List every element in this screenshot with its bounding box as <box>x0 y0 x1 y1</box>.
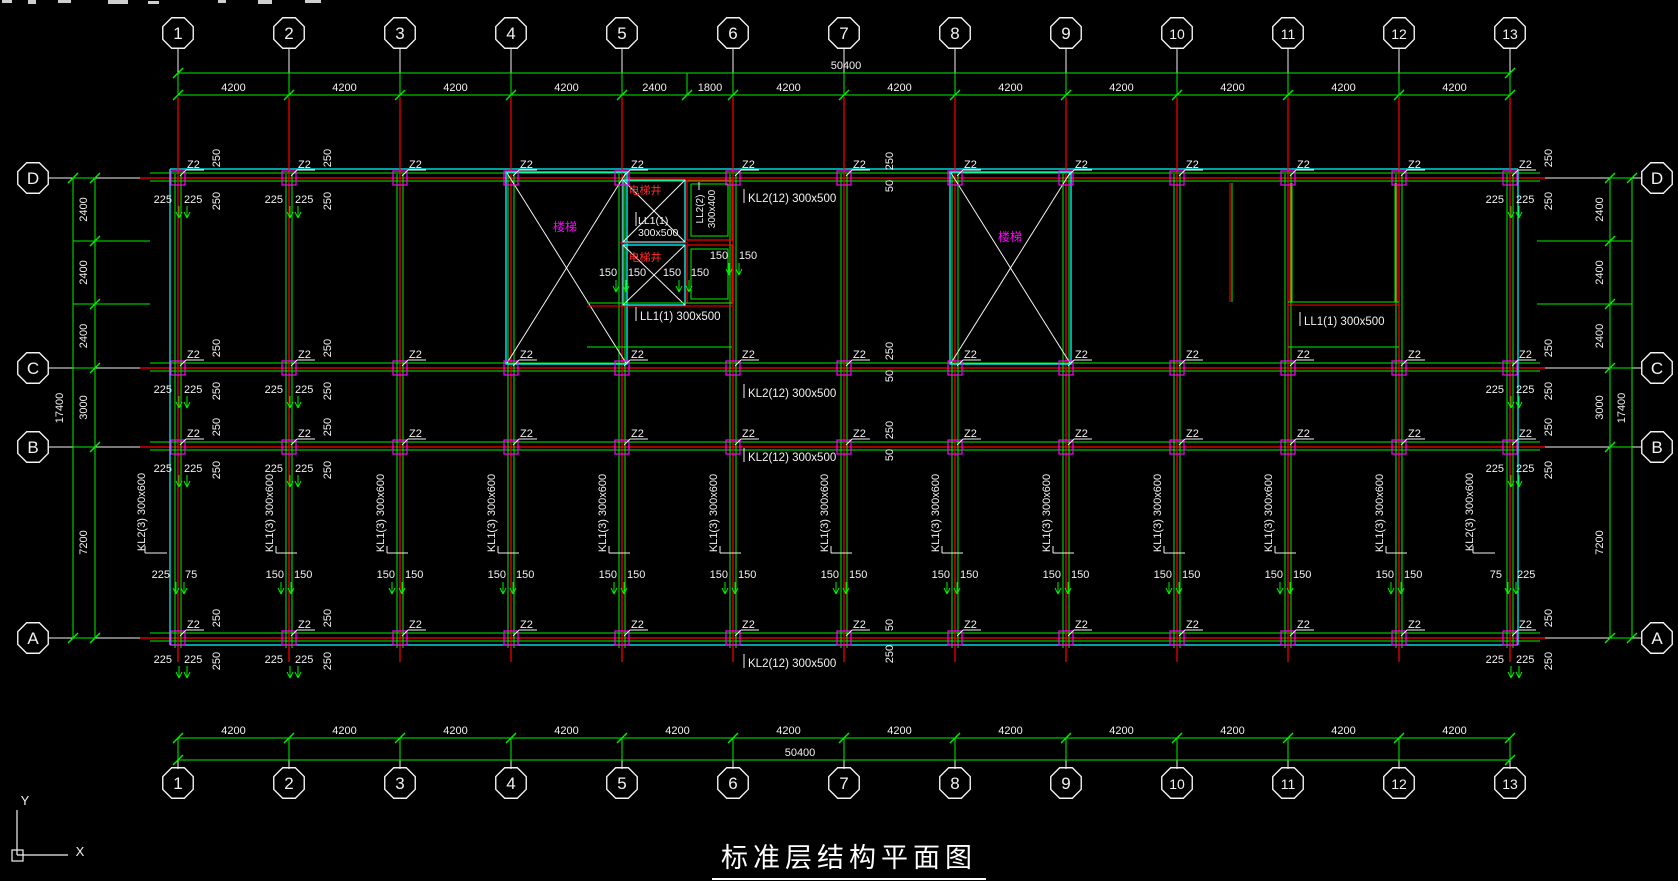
bubble-label: 2 <box>284 24 293 43</box>
column-tag: Z2 <box>1408 349 1421 361</box>
dim-text: 4200 <box>554 725 578 737</box>
column-tag: Z2 <box>1297 349 1310 361</box>
column-tag: Z2 <box>1075 159 1088 171</box>
dim-text: 225 <box>184 463 202 475</box>
dim-text: 225 <box>1486 654 1504 666</box>
dim-text: 150 <box>738 569 756 581</box>
dim-text: 150 <box>599 569 617 581</box>
dim-text: 2400 <box>78 197 90 221</box>
dim-text: 225 <box>295 194 313 206</box>
column-tag: Z2 <box>1186 428 1199 440</box>
dim-text: 150 <box>628 267 646 279</box>
beam-label: KL1(3) 300x600 <box>1152 474 1164 552</box>
column-tag: Z2 <box>187 159 200 171</box>
dim-text: 225 <box>265 194 283 206</box>
dim-text: 7200 <box>78 530 90 554</box>
beam-label: KL1(3) 300x600 <box>264 474 276 552</box>
stair-label: 楼梯 <box>998 229 1022 244</box>
dim-text: 250 <box>211 461 223 479</box>
dim-text: 150 <box>1043 569 1061 581</box>
clipped-text-fragment <box>108 0 128 4</box>
dim-text: 150 <box>516 569 534 581</box>
beam-label: KL2(12) 300x500 <box>748 388 836 400</box>
dim-text: 2400 <box>78 260 90 284</box>
dim-text: 50 <box>884 370 896 382</box>
dim-text: 2400 <box>642 82 666 94</box>
dim-text: 4200 <box>332 725 356 737</box>
dim-text: 250 <box>322 382 334 400</box>
dim-text: 225 <box>1486 194 1504 206</box>
bubble-label: 12 <box>1391 776 1407 792</box>
bubble-label: 8 <box>950 24 959 43</box>
column-tag: Z2 <box>742 349 755 361</box>
column-tag: Z2 <box>1408 159 1421 171</box>
dim-text: 4200 <box>332 82 356 94</box>
column-tag: Z2 <box>520 619 533 631</box>
beam-label: LL1(1) 300x500 <box>640 311 721 323</box>
dim-text: 250 <box>211 149 223 167</box>
column-tag: Z2 <box>1297 428 1310 440</box>
dim-text: 150 <box>627 569 645 581</box>
column-tag: Z2 <box>631 619 644 631</box>
dim-text: 225 <box>265 384 283 396</box>
dim-text: 225 <box>295 654 313 666</box>
bubble-label: 11 <box>1281 776 1296 792</box>
dim-text: 225 <box>154 463 172 475</box>
dim-text: 250 <box>1543 461 1555 479</box>
dim-text: 3000 <box>1594 395 1606 419</box>
bubble-label: C <box>27 359 39 378</box>
dim-text: 150 <box>1154 569 1172 581</box>
bubble-label: B <box>1651 438 1662 457</box>
dim-text: 4200 <box>554 82 578 94</box>
dim-text: 2400 <box>1594 260 1606 284</box>
clipped-text-fragment <box>2 0 12 3</box>
beam-label: KL2(3) 300x600 <box>1464 473 1476 551</box>
beam-label: KL1(3) 300x600 <box>375 474 387 552</box>
dim-text: 2400 <box>1594 197 1606 221</box>
column-tag: Z2 <box>520 159 533 171</box>
dim-text: 225 <box>184 384 202 396</box>
column-tag: Z2 <box>853 159 866 171</box>
clipped-text-fragment <box>305 0 321 3</box>
clipped-text-fragment <box>258 0 272 4</box>
dim-text: 4200 <box>887 82 911 94</box>
bubble-label: 7 <box>839 774 848 793</box>
dim-text: 225 <box>295 463 313 475</box>
column-tag: Z2 <box>742 159 755 171</box>
dim-text: 150 <box>663 267 681 279</box>
dim-text: 250 <box>211 192 223 210</box>
dim-text: 225 <box>1516 463 1534 475</box>
dim-text: 250 <box>1543 339 1555 357</box>
bubble-label: 4 <box>506 24 515 43</box>
beam-label: LL1(1) 300x500 <box>1304 316 1385 328</box>
clipped-text-fragment <box>148 1 159 4</box>
column-tag: Z2 <box>631 159 644 171</box>
dim-text: 250 <box>1543 652 1555 670</box>
dim-text: 225 <box>154 194 172 206</box>
dim-text: 225 <box>154 654 172 666</box>
dim-text: 150 <box>266 569 284 581</box>
bubble-label: 6 <box>728 774 737 793</box>
dim-text: 150 <box>960 569 978 581</box>
dim-text: 225 <box>265 463 283 475</box>
total-dim: 17400 <box>54 393 66 424</box>
beam-label: 300x500 <box>638 227 678 239</box>
dim-text: 150 <box>1071 569 1089 581</box>
column-tag: Z2 <box>1075 619 1088 631</box>
bubble-label: 5 <box>617 24 626 43</box>
column-tag: Z2 <box>1519 159 1532 171</box>
bubble-label: D <box>27 169 39 188</box>
ucs-y-label: Y <box>21 793 30 808</box>
dim-text: 4200 <box>887 725 911 737</box>
dim-text: 4200 <box>443 725 467 737</box>
bubble-label: 3 <box>395 24 404 43</box>
bubble-label: 5 <box>617 774 626 793</box>
dim-text: 150 <box>710 250 728 262</box>
dim-text: 225 <box>1486 463 1504 475</box>
total-dim: 17400 <box>1616 393 1628 424</box>
column-tag: Z2 <box>298 159 311 171</box>
dim-text: 3000 <box>78 395 90 419</box>
column-tag: Z2 <box>631 428 644 440</box>
dim-text: 150 <box>1404 569 1422 581</box>
beam-label: KL1(3) 300x600 <box>930 474 942 552</box>
bubble-label: 13 <box>1502 26 1518 42</box>
column-tag: Z2 <box>298 619 311 631</box>
beam-label: KL1(3) 300x600 <box>486 474 498 552</box>
dim-text: 4200 <box>1220 82 1244 94</box>
dim-text: 225 <box>184 654 202 666</box>
beam-label: KL1(3) 300x600 <box>1041 474 1053 552</box>
dim-text: 225 <box>295 384 313 396</box>
dim-text: 4200 <box>1331 82 1355 94</box>
dim-text: 250 <box>1543 418 1555 436</box>
column-tag: Z2 <box>853 428 866 440</box>
beam-label: LL2(2) <box>695 195 706 224</box>
dim-text: 250 <box>211 609 223 627</box>
column-tag: Z2 <box>409 159 422 171</box>
dim-text: 250 <box>211 339 223 357</box>
column-tag: Z2 <box>1075 428 1088 440</box>
dim-text: 150 <box>405 569 423 581</box>
dim-text: 250 <box>322 461 334 479</box>
column-tag: Z2 <box>1519 619 1532 631</box>
beam-label: KL2(12) 300x500 <box>748 658 836 670</box>
clipped-text-fragment <box>218 0 226 3</box>
dim-text: 50 <box>884 449 896 461</box>
column-tag: Z2 <box>631 349 644 361</box>
bubble-label: 10 <box>1169 26 1185 42</box>
beam-label: KL1(3) 300x600 <box>708 474 720 552</box>
elevator-shaft-label: 电梯井 <box>629 250 662 264</box>
bubble-label: 10 <box>1169 776 1185 792</box>
dim-text: 4200 <box>776 725 800 737</box>
dim-text: 4200 <box>1331 725 1355 737</box>
dim-text: 150 <box>488 569 506 581</box>
bubble-label: 1 <box>173 774 182 793</box>
dim-text: 250 <box>884 421 896 439</box>
beam-label: LL1(1) <box>638 215 668 227</box>
column-tag: Z2 <box>1408 428 1421 440</box>
bubble-label: 1 <box>173 24 182 43</box>
dim-text: 4200 <box>665 725 689 737</box>
column-tag: Z2 <box>964 349 977 361</box>
dim-text: 225 <box>1517 569 1535 581</box>
bubble-label: 4 <box>506 774 515 793</box>
dim-text: 2400 <box>1594 324 1606 348</box>
total-dim: 50400 <box>831 60 862 72</box>
dim-text: 250 <box>884 342 896 360</box>
dim-text: 225 <box>1516 194 1534 206</box>
dim-text: 4200 <box>1442 725 1466 737</box>
beam-label: KL2(12) 300x500 <box>748 452 836 464</box>
dim-text: 4200 <box>1220 725 1244 737</box>
column-tag: Z2 <box>1519 428 1532 440</box>
dim-text: 225 <box>1516 654 1534 666</box>
bubble-label: B <box>27 438 38 457</box>
column-tag: Z2 <box>742 619 755 631</box>
structural-plan-drawing: 4200420042004200240018004200420042004200… <box>0 0 1678 881</box>
dim-text: 50 <box>884 180 896 192</box>
dim-text: 250 <box>322 418 334 436</box>
dim-text: 4200 <box>1109 725 1133 737</box>
bubble-label: 11 <box>1281 26 1296 42</box>
dim-text: 75 <box>1490 569 1502 581</box>
dim-text: 250 <box>884 645 896 663</box>
dim-text: 4200 <box>221 725 245 737</box>
total-dim: 50400 <box>785 747 816 759</box>
column-tag: Z2 <box>1186 349 1199 361</box>
dim-text: 2400 <box>78 324 90 348</box>
dim-text: 4200 <box>998 725 1022 737</box>
bubble-label: 9 <box>1061 24 1070 43</box>
ucs-x-label: X <box>76 844 85 859</box>
dim-text: 250 <box>322 149 334 167</box>
dim-text: 150 <box>821 569 839 581</box>
bubble-label: 6 <box>728 24 737 43</box>
dim-text: 250 <box>322 192 334 210</box>
dim-text: 4200 <box>443 82 467 94</box>
dim-text: 150 <box>1182 569 1200 581</box>
column-tag: Z2 <box>1519 349 1532 361</box>
dim-text: 50 <box>884 619 896 631</box>
dim-text: 250 <box>1543 609 1555 627</box>
dim-text: 250 <box>1543 192 1555 210</box>
dim-text: 250 <box>1543 382 1555 400</box>
dim-text: 250 <box>211 652 223 670</box>
bubble-label: C <box>1651 359 1663 378</box>
column-tag: Z2 <box>742 428 755 440</box>
column-tag: Z2 <box>1186 619 1199 631</box>
bubble-label: 8 <box>950 774 959 793</box>
column-tag: Z2 <box>964 428 977 440</box>
bubble-label: D <box>1651 169 1663 188</box>
column-tag: Z2 <box>187 349 200 361</box>
column-tag: Z2 <box>853 349 866 361</box>
dim-text: 250 <box>322 339 334 357</box>
column-tag: Z2 <box>409 428 422 440</box>
dim-text: 7200 <box>1594 530 1606 554</box>
column-tag: Z2 <box>1075 349 1088 361</box>
column-tag: Z2 <box>298 428 311 440</box>
dim-text: 4200 <box>1109 82 1133 94</box>
drawing-title: 标准层结构平面图 <box>712 836 986 881</box>
bubble-label: 12 <box>1391 26 1407 42</box>
dim-text: 225 <box>184 194 202 206</box>
bubble-label: 9 <box>1061 774 1070 793</box>
dim-text: 150 <box>739 250 757 262</box>
dim-text: 250 <box>322 609 334 627</box>
dim-text: 225 <box>154 384 172 396</box>
beam-label: 300x400 <box>707 189 718 228</box>
column-tag: Z2 <box>1297 619 1310 631</box>
column-tag: Z2 <box>520 428 533 440</box>
dim-text: 150 <box>691 267 709 279</box>
dim-text: 150 <box>377 569 395 581</box>
dim-text: 225 <box>1516 384 1534 396</box>
elevator-shaft-label: 电梯井 <box>629 183 662 197</box>
bubble-label: 3 <box>395 774 404 793</box>
column-tag: Z2 <box>298 349 311 361</box>
dim-text: 250 <box>322 652 334 670</box>
cad-canvas[interactable]: 4200420042004200240018004200420042004200… <box>0 0 1678 881</box>
bubble-label: 13 <box>1502 776 1518 792</box>
dim-text: 250 <box>211 418 223 436</box>
column-tag: Z2 <box>964 619 977 631</box>
dim-text: 4200 <box>998 82 1022 94</box>
beam-label: KL1(3) 300x600 <box>819 474 831 552</box>
column-tag: Z2 <box>187 619 200 631</box>
dim-text: 250 <box>884 152 896 170</box>
stair-label: 楼梯 <box>553 219 577 234</box>
dim-text: 1800 <box>698 82 722 94</box>
dim-text: 250 <box>211 382 223 400</box>
bubble-label: A <box>1651 629 1663 648</box>
dim-text: 4200 <box>1442 82 1466 94</box>
column-tag: Z2 <box>1408 619 1421 631</box>
column-tag: Z2 <box>409 619 422 631</box>
dim-text: 225 <box>152 569 170 581</box>
clipped-text-fragment <box>58 0 71 3</box>
beam-label: KL2(12) 300x500 <box>748 193 836 205</box>
dim-text: 150 <box>294 569 312 581</box>
dim-text: 150 <box>599 267 617 279</box>
column-tag: Z2 <box>1297 159 1310 171</box>
column-tag: Z2 <box>1186 159 1199 171</box>
column-tag: Z2 <box>964 159 977 171</box>
clipped-text-fragment <box>28 0 36 4</box>
beam-label: KL1(3) 300x600 <box>597 474 609 552</box>
column-tag: Z2 <box>409 349 422 361</box>
dim-text: 4200 <box>221 82 245 94</box>
dim-text: 225 <box>1486 384 1504 396</box>
bubble-label: 2 <box>284 774 293 793</box>
dim-text: 75 <box>185 569 197 581</box>
dim-text: 150 <box>1265 569 1283 581</box>
column-tag: Z2 <box>853 619 866 631</box>
dim-text: 150 <box>849 569 867 581</box>
beam-label: KL1(3) 300x600 <box>1263 474 1275 552</box>
bubble-label: 7 <box>839 24 848 43</box>
dim-text: 150 <box>932 569 950 581</box>
bubble-label: A <box>27 629 39 648</box>
beam-label: KL2(3) 300x600 <box>136 473 148 551</box>
dim-text: 4200 <box>776 82 800 94</box>
beam-label: KL1(3) 300x600 <box>1374 474 1386 552</box>
dim-text: 150 <box>710 569 728 581</box>
dim-text: 150 <box>1376 569 1394 581</box>
column-tag: Z2 <box>187 428 200 440</box>
dim-text: 225 <box>265 654 283 666</box>
dim-text: 250 <box>1543 149 1555 167</box>
column-tag: Z2 <box>520 349 533 361</box>
dim-text: 150 <box>1293 569 1311 581</box>
